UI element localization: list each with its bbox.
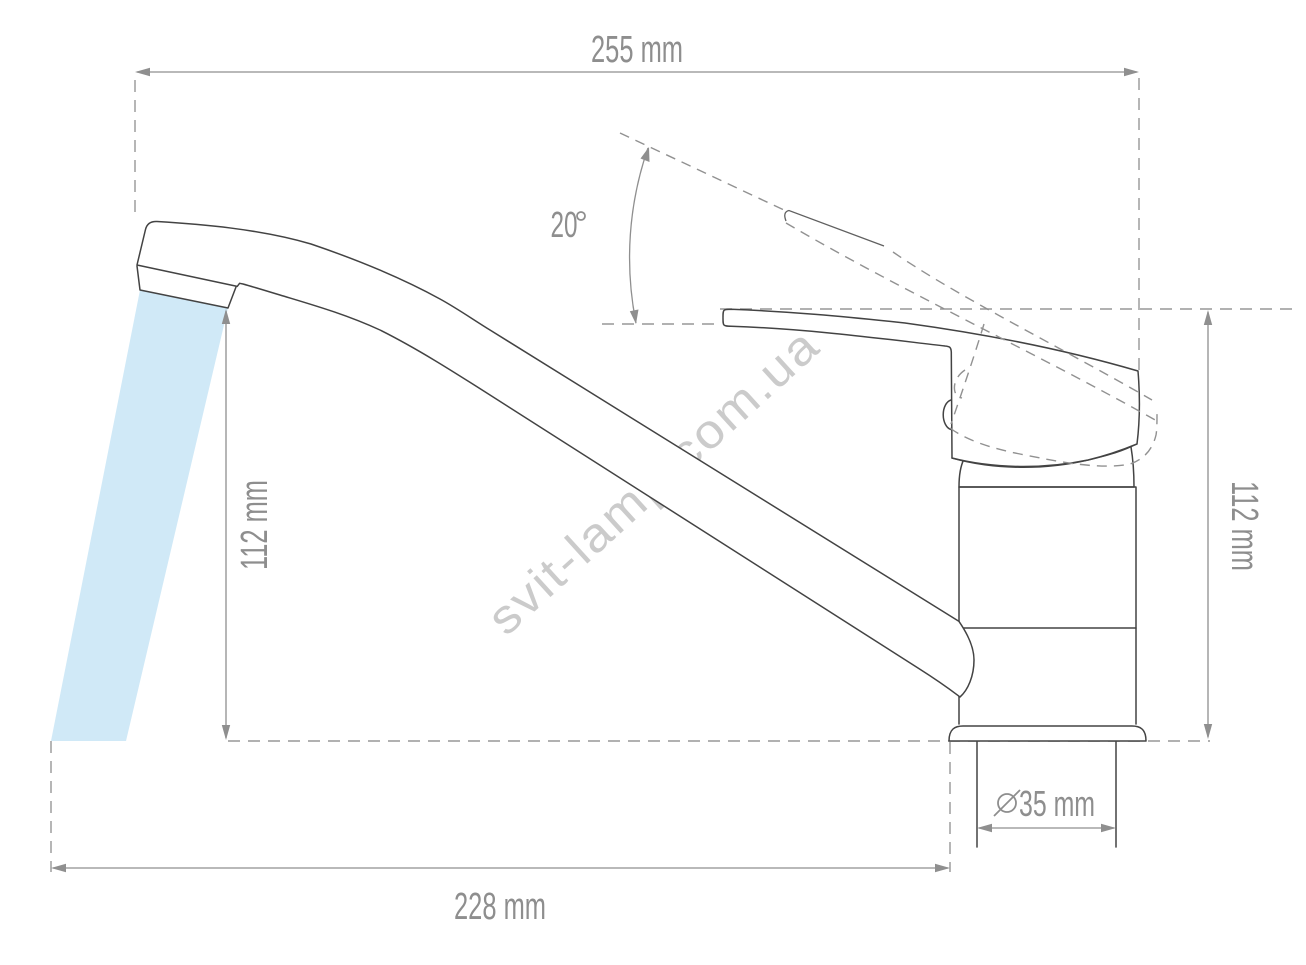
svg-text:35 mm: 35 mm [1019,783,1095,824]
svg-text:228 mm: 228 mm [454,886,546,928]
svg-text:112 mm: 112 mm [1223,481,1265,571]
svg-text:112 mm: 112 mm [234,480,276,570]
svg-text:20: 20 [551,204,578,245]
svg-text:255 mm: 255 mm [591,29,683,71]
